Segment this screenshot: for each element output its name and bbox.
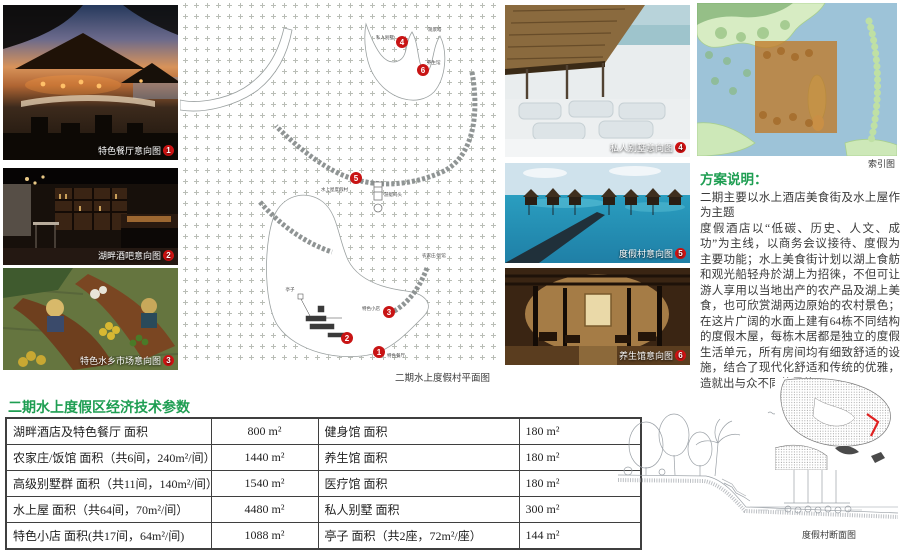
scheme-description: 方案说明： 二期主要以水上酒店美食街及水上屋作为主题 度假酒店以“低碳、历史、人…	[700, 172, 900, 392]
caption-number-badge: 5	[675, 248, 686, 259]
index-map-drawing	[697, 3, 897, 156]
description-paragraph-1: 二期主要以水上酒店美食街及水上屋作为主题	[700, 191, 900, 222]
presentation-board: 特色餐厅意向图 1 湖畔酒吧意向图 2	[0, 0, 900, 551]
param-label: 私人别墅 面积	[318, 497, 519, 523]
economic-parameters-table: 湖畔酒店及特色餐厅 面积 800 m² 健身馆 面积 180 m² 农家庄/饭馆…	[5, 417, 642, 550]
param-label: 农家庄/饭馆 面积（共6间，240m²/间）	[6, 445, 211, 471]
photo-resort-village: 度假村意向图 5	[505, 163, 690, 263]
param-label: 亭子 面积（共2座，72m²/座）	[318, 523, 519, 550]
marker-6: 6	[421, 66, 426, 75]
param-value: 800 m²	[211, 418, 318, 445]
caption-number-badge: 2	[163, 250, 174, 261]
photo-caption: 特色水乡市场意向图 3	[80, 354, 174, 367]
table-row: 高级别墅群 面积（共11间，140m²/间） 1540 m² 医疗馆 面积 18…	[6, 471, 641, 497]
marker-2: 2	[345, 334, 350, 343]
photo-private-villa: 私人别墅意向图 4	[505, 5, 690, 157]
plan-label: 养生馆	[427, 59, 441, 66]
index-map: 索引图	[697, 3, 897, 173]
param-label: 特色小店 面积(共17间，64m²/间)	[6, 523, 211, 550]
param-value: 4480 m²	[211, 497, 318, 523]
param-label: 医疗馆 面积	[318, 471, 519, 497]
plan-label: 水上屋度假村	[321, 186, 348, 193]
index-map-caption: 索引图	[868, 157, 895, 170]
section-keymap-inset	[775, 378, 898, 470]
photo-caption-text: 特色餐厅意向图	[98, 144, 161, 157]
table-row: 农家庄/饭馆 面积（共6间，240m²/间） 1440 m² 养生馆 面积 18…	[6, 445, 641, 471]
caption-number-badge: 1	[163, 145, 174, 156]
table-row: 水上屋 面积（共64间，70m²/间） 4480 m² 私人别墅 面积 300 …	[6, 497, 641, 523]
site-plan-drawing: 私人别墅 观景塔 养生馆 亭子 游艇码头 特色餐厅 特色小店 农家庄/饭馆 水上…	[180, 0, 500, 385]
marker-5: 5	[354, 174, 359, 183]
param-label: 高级别墅群 面积（共11间，140m²/间）	[6, 471, 211, 497]
description-heading: 方案说明：	[700, 172, 900, 188]
param-label: 健身馆 面积	[318, 418, 519, 445]
param-label: 湖畔酒店及特色餐厅 面积	[6, 418, 211, 445]
photo-bar: 湖畔酒吧意向图 2	[3, 168, 178, 265]
marker-3: 3	[387, 308, 392, 317]
site-plan-caption: 二期水上度假村平面图	[395, 370, 490, 384]
section-caption: 度假村断面图	[802, 528, 856, 541]
table-row: 湖畔酒店及特色餐厅 面积 800 m² 健身馆 面积 180 m²	[6, 418, 641, 445]
param-value: 1540 m²	[211, 471, 318, 497]
table-row: 特色小店 面积(共17间，64m²/间) 1088 m² 亭子 面积（共2座，7…	[6, 523, 641, 550]
table-title: 二期水上度假区经济技术参数	[8, 397, 190, 417]
keymap-inset-drawing	[775, 378, 898, 470]
pier	[374, 182, 382, 212]
plan-label: 特色餐厅	[387, 352, 405, 359]
marker-1: 1	[377, 348, 382, 357]
photo-floating-market: 特色水乡市场意向图 3	[3, 268, 178, 370]
caption-number-badge: 6	[675, 350, 686, 361]
photo-restaurant: 特色餐厅意向图 1	[3, 5, 178, 160]
plan-label: 农家庄/饭馆	[422, 252, 446, 259]
photo-caption-text: 养生馆意向图	[619, 349, 673, 362]
plan-label: 观景塔	[428, 26, 442, 33]
param-value: 1088 m²	[211, 523, 318, 550]
plan-label: 游艇码头	[384, 191, 402, 198]
photo-caption: 湖畔酒吧意向图 2	[98, 249, 174, 262]
description-paragraph-2: 度假酒店以“低碳、历史、人文、成功”为主线，以商务会议接待、度假为主要功能；水上…	[700, 222, 900, 393]
plan-label: 特色小店	[362, 305, 380, 312]
plan-label: 私人别墅	[376, 34, 394, 41]
param-label: 水上屋 面积（共64间，70m²/间）	[6, 497, 211, 523]
photo-wellness-hall: 养生馆意向图 6	[505, 268, 690, 365]
plan-label: 亭子	[286, 286, 295, 292]
photo-caption-text: 度假村意向图	[619, 247, 673, 260]
photo-caption-text: 特色水乡市场意向图	[80, 354, 161, 367]
photo-caption: 特色餐厅意向图 1	[98, 144, 174, 157]
restaurant-sunset-illustration	[3, 5, 178, 160]
site-plan: 私人别墅 观景塔 养生馆 亭子 游艇码头 特色餐厅 特色小店 农家庄/饭馆 水上…	[180, 0, 500, 385]
photo-caption-text: 私人别墅意向图	[610, 141, 673, 154]
caption-number-badge: 4	[675, 142, 686, 153]
photo-caption: 养生馆意向图 6	[619, 349, 686, 362]
photo-caption: 度假村意向图 5	[619, 247, 686, 260]
caption-number-badge: 3	[163, 355, 174, 366]
marker-4: 4	[400, 38, 405, 47]
param-label: 养生馆 面积	[318, 445, 519, 471]
photo-caption: 私人别墅意向图 4	[610, 141, 686, 154]
param-value: 1440 m²	[211, 445, 318, 471]
photo-caption-text: 湖畔酒吧意向图	[98, 249, 161, 262]
villa-deck-illustration	[505, 5, 690, 157]
